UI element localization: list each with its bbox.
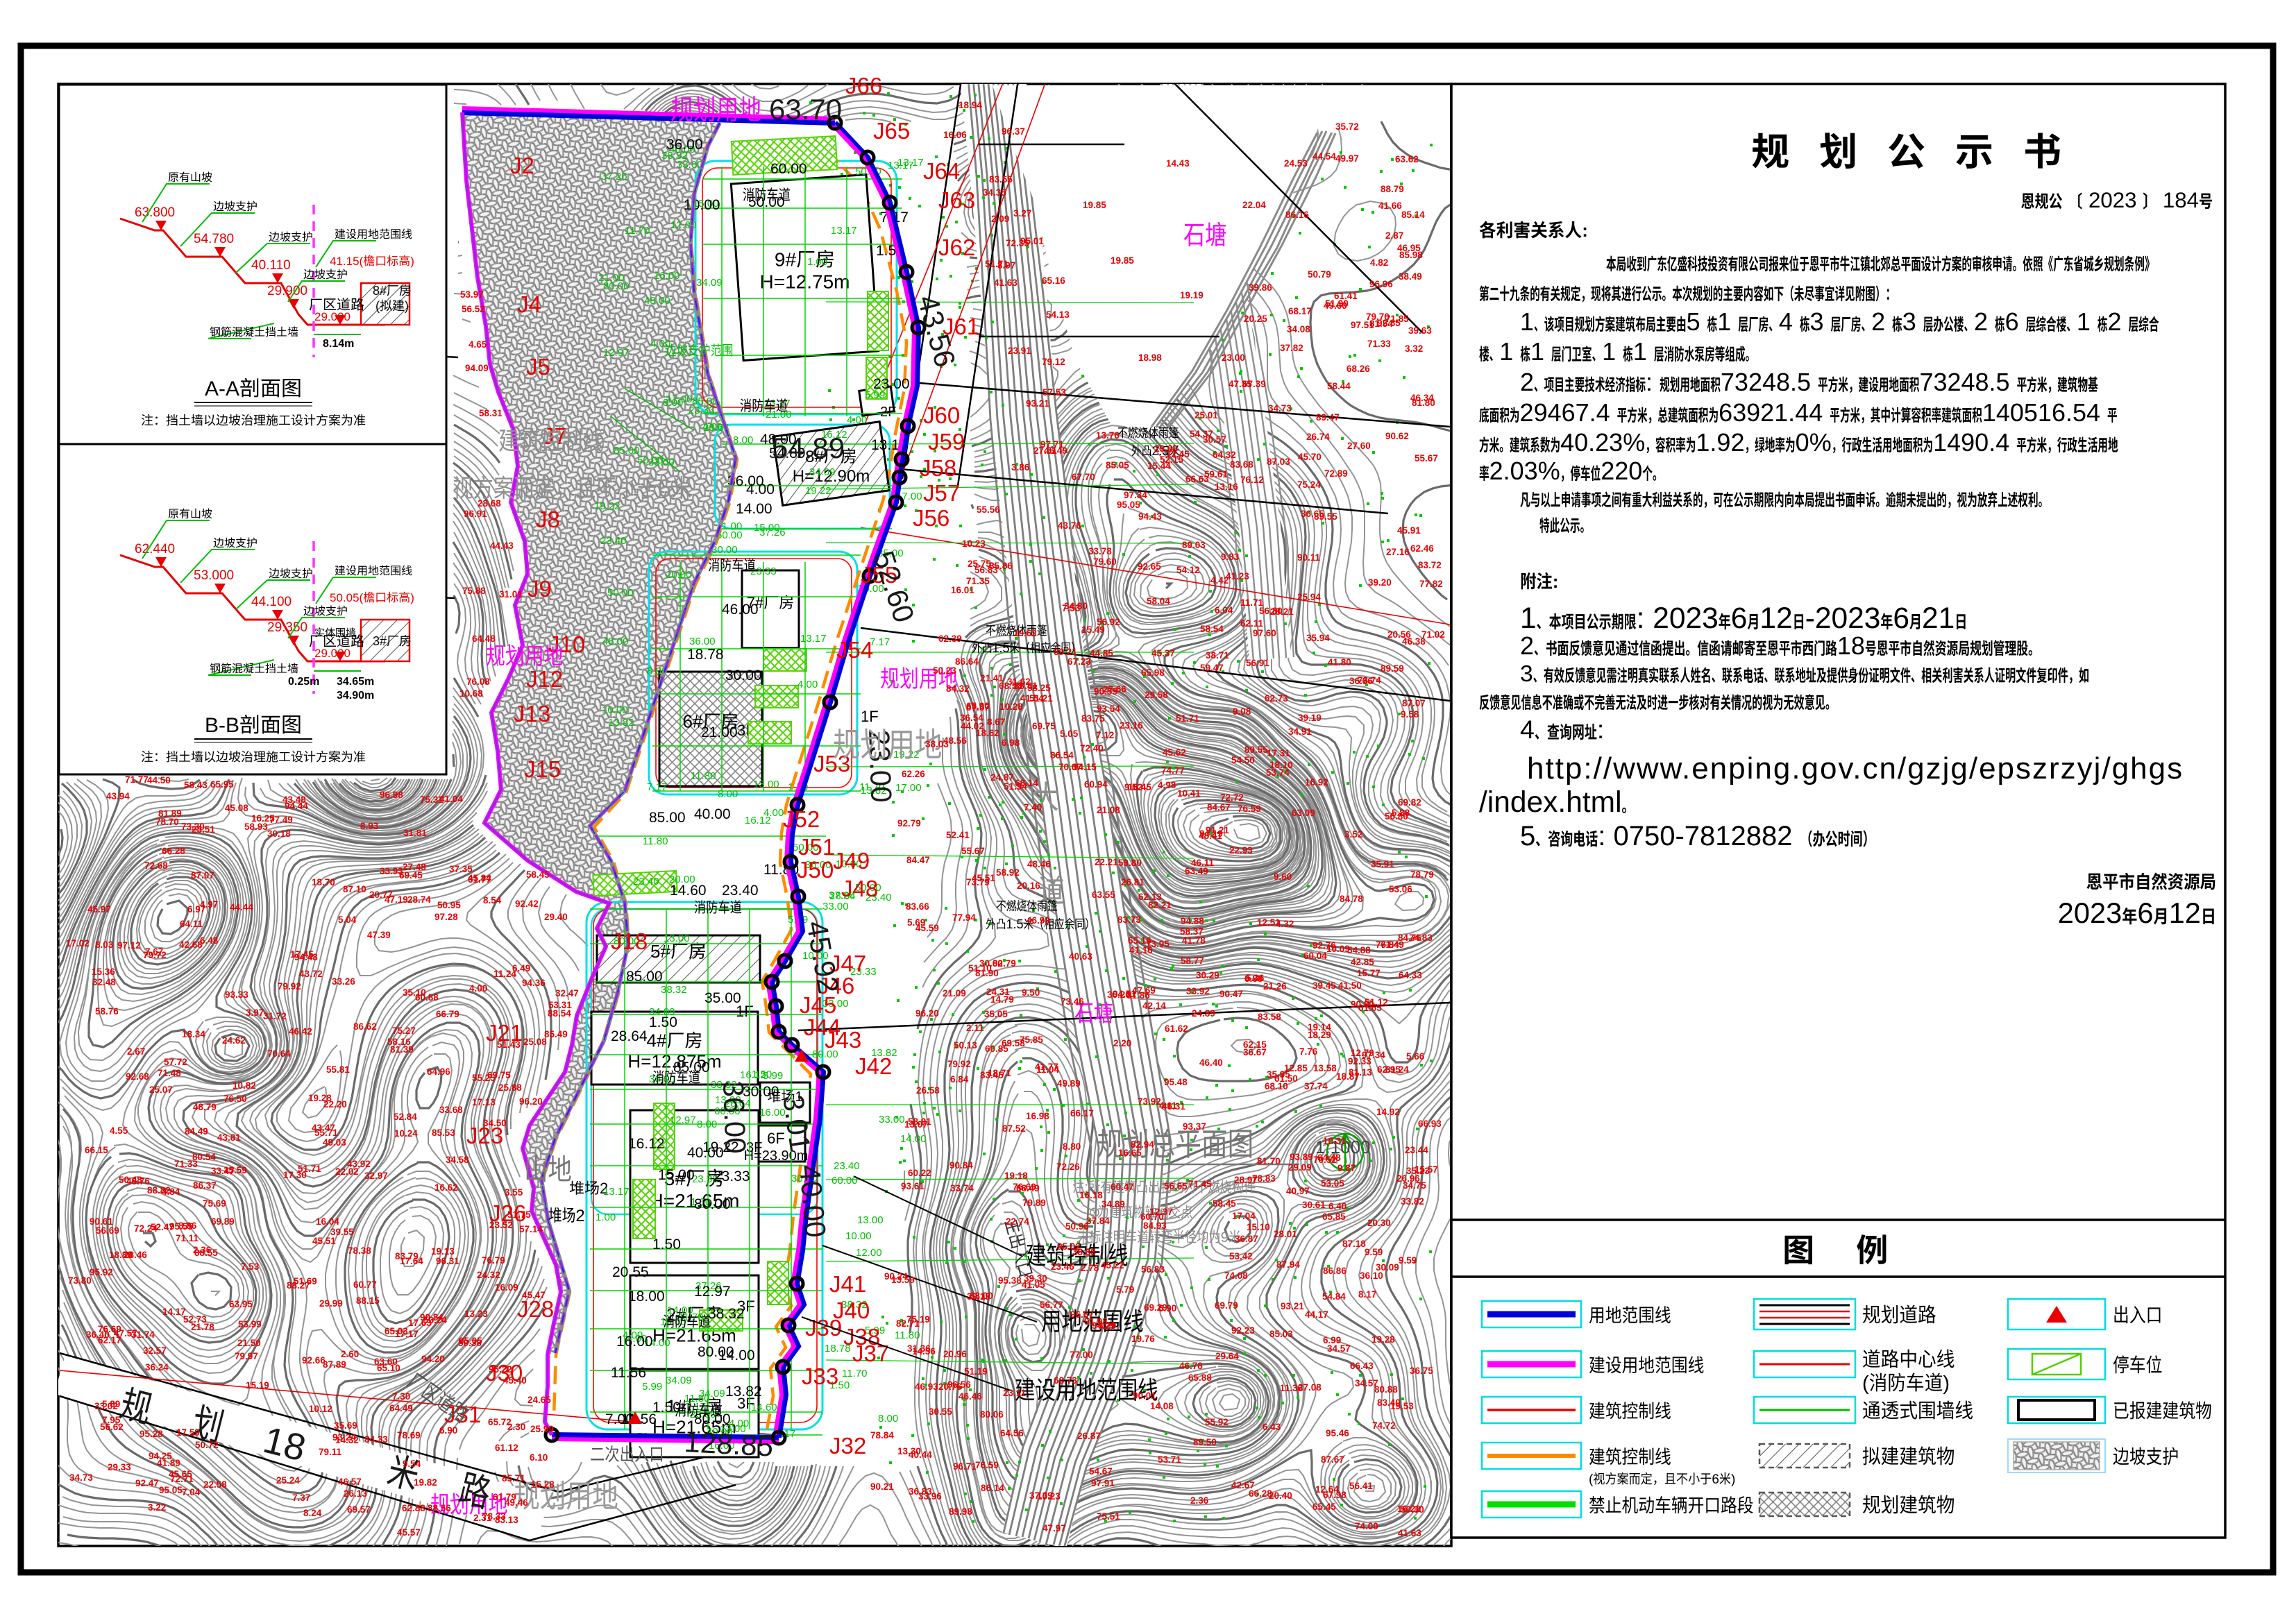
svg-text:2023: 2023 (2082, 188, 2143, 212)
svg-text:97.34: 97.34 (1124, 490, 1147, 500)
svg-text:72.24: 72.24 (134, 1223, 158, 1234)
svg-text:50.79: 50.79 (1308, 269, 1331, 280)
svg-text:76.84: 76.84 (1376, 940, 1399, 950)
svg-text:29.900: 29.900 (267, 284, 307, 298)
svg-text::: : (1646, 368, 1660, 396)
svg-text:10.82: 10.82 (233, 1080, 256, 1091)
svg-text:4.00: 4.00 (797, 679, 818, 690)
svg-text:76.79: 76.79 (482, 1255, 505, 1266)
svg-text:69.57: 69.57 (347, 1504, 371, 1515)
svg-text:58.31: 58.31 (479, 408, 503, 418)
svg-text:2: 2 (1520, 631, 1534, 660)
svg-text:20.30: 20.30 (1367, 1218, 1391, 1228)
svg-text:33.00: 33.00 (677, 159, 703, 171)
svg-text:48.00: 48.00 (644, 295, 670, 307)
svg-text:J18: J18 (611, 928, 648, 954)
svg-text:54.12: 54.12 (1176, 565, 1200, 575)
svg-text:53.71: 53.71 (1158, 1454, 1181, 1465)
svg-text:65.45: 65.45 (1312, 1502, 1336, 1512)
svg-text:77.00: 77.00 (1070, 1350, 1093, 1360)
svg-text:29.33: 29.33 (108, 1462, 131, 1472)
svg-text:4.55: 4.55 (110, 1125, 128, 1136)
svg-text:4.00: 4.00 (763, 807, 784, 819)
svg-text:1: 1 (1499, 337, 1520, 366)
svg-text:23.52: 23.52 (489, 1220, 513, 1230)
svg-text:64.48: 64.48 (472, 634, 496, 644)
svg-text:94.20: 94.20 (421, 1354, 445, 1364)
svg-text:13.17: 13.17 (831, 225, 857, 237)
svg-text:J32: J32 (829, 1433, 866, 1459)
svg-text:46.38: 46.38 (1402, 636, 1426, 647)
svg-text:(: ( (375, 299, 380, 313)
svg-text:62.46: 62.46 (1410, 543, 1434, 554)
svg-text:67.23: 67.23 (1067, 656, 1091, 667)
svg-text:85.05: 85.05 (1106, 460, 1129, 470)
svg-text:38.32: 38.32 (661, 984, 687, 996)
svg-text:45.08: 45.08 (225, 803, 248, 813)
svg-text:2: 2 (1974, 307, 1995, 336)
svg-text:67.98: 67.98 (1323, 1490, 1347, 1500)
svg-text:8.14m: 8.14m (323, 338, 354, 350)
svg-text:27.16: 27.16 (1386, 547, 1410, 557)
svg-text:55.67: 55.67 (961, 846, 985, 856)
svg-text:12: 12 (2169, 897, 2201, 929)
svg-text:11.24: 11.24 (493, 969, 517, 979)
svg-text:60.22: 60.22 (908, 1168, 931, 1178)
svg-text:22.02: 22.02 (335, 1166, 359, 1177)
svg-text:7.30: 7.30 (392, 1391, 410, 1402)
svg-text:46.46: 46.46 (959, 1391, 982, 1402)
svg-text:48.00: 48.00 (602, 636, 629, 647)
svg-text:3: 3 (1520, 661, 1533, 687)
svg-text:69.89: 69.89 (211, 1216, 235, 1227)
svg-text:J42: J42 (855, 1053, 892, 1079)
svg-text:74.72: 74.72 (1372, 1420, 1396, 1431)
svg-text:25.99: 25.99 (530, 1424, 554, 1434)
svg-text:60.85: 60.85 (985, 1044, 1008, 1054)
svg-text:63921.44: 63921.44 (1719, 398, 1830, 427)
svg-text:71.45: 71.45 (1188, 1179, 1212, 1189)
svg-text:9.54: 9.54 (403, 1459, 421, 1469)
svg-text:9.87: 9.87 (1337, 1163, 1356, 1173)
svg-text:66.15: 66.15 (85, 1145, 108, 1155)
svg-text:37.82: 37.82 (1280, 343, 1303, 353)
svg-text:90.47: 90.47 (1219, 989, 1243, 999)
svg-text:3: 3 (1902, 307, 1923, 336)
svg-text:88.56: 88.56 (428, 1503, 451, 1513)
svg-text:1F: 1F (861, 708, 879, 725)
svg-text:25.07: 25.07 (149, 1085, 173, 1095)
svg-text:35.05: 35.05 (984, 1009, 1008, 1019)
svg-text:18.88: 18.88 (109, 1250, 133, 1260)
svg-text:92.65: 92.65 (1138, 561, 1161, 572)
svg-text:6.84: 6.84 (950, 1074, 969, 1085)
svg-text:55.92: 55.92 (1205, 1417, 1229, 1427)
svg-text:14.60: 14.60 (751, 1402, 777, 1413)
svg-text:3#: 3# (373, 634, 387, 648)
svg-text:6: 6 (2137, 897, 2153, 929)
svg-text:19.22: 19.22 (805, 485, 832, 497)
svg-text:23.33: 23.33 (714, 1169, 750, 1184)
svg-text:95.46: 95.46 (1326, 1428, 1349, 1438)
svg-text:79.12: 79.12 (1042, 357, 1065, 367)
svg-text:51.43: 51.43 (497, 1039, 521, 1050)
svg-text:16.01: 16.01 (951, 585, 974, 595)
svg-text:62.73: 62.73 (1265, 693, 1288, 704)
svg-text:12.97: 12.97 (670, 1114, 696, 1126)
svg-text:46.93: 46.93 (915, 1382, 938, 1392)
svg-text:92.42: 92.42 (515, 899, 539, 909)
svg-text:(: ( (1862, 1373, 1869, 1395)
svg-text:33.00: 33.00 (879, 1114, 905, 1125)
svg-text:50.30: 50.30 (1401, 1504, 1424, 1515)
svg-text:84.67: 84.67 (1207, 802, 1231, 813)
svg-text:86.86: 86.86 (1323, 1266, 1347, 1276)
svg-text:1: 1 (1520, 602, 1537, 635)
svg-text:14.00: 14.00 (900, 1133, 927, 1145)
svg-text:92.79: 92.79 (897, 818, 921, 829)
svg-text:93.37: 93.37 (1183, 1121, 1206, 1132)
svg-text:6: 6 (1712, 1472, 1719, 1487)
svg-text:12.97: 12.97 (694, 1284, 731, 1300)
svg-text:23.44: 23.44 (1405, 1145, 1428, 1155)
svg-text:8.00: 8.00 (878, 1413, 898, 1425)
svg-text:61.65: 61.65 (1358, 1003, 1382, 1013)
svg-text:2.78: 2.78 (1081, 1263, 1099, 1273)
svg-text:41.63: 41.63 (1398, 1528, 1421, 1538)
svg-text:29467.4: 29467.4 (1520, 398, 1617, 427)
svg-text:16.92: 16.92 (1305, 777, 1328, 788)
svg-text:10.12: 10.12 (309, 1404, 332, 1414)
svg-text:29.58: 29.58 (1145, 690, 1168, 700)
svg-text:62.11: 62.11 (1240, 618, 1264, 629)
svg-text:79.72: 79.72 (143, 950, 167, 960)
svg-text:32.48: 32.48 (92, 977, 116, 987)
svg-text:80.00: 80.00 (694, 1196, 731, 1212)
svg-text:94.25: 94.25 (149, 1451, 172, 1461)
svg-text:96.98: 96.98 (380, 790, 403, 800)
svg-text:50.72: 50.72 (195, 1440, 219, 1450)
svg-text:63.70: 63.70 (769, 93, 842, 126)
svg-text:12.00: 12.00 (856, 1247, 882, 1259)
svg-text:65.95: 65.95 (210, 779, 234, 790)
svg-text:35.94: 35.94 (1306, 633, 1330, 643)
svg-text:66.93: 66.93 (1418, 1119, 1442, 1129)
svg-text:25.94: 25.94 (1297, 592, 1321, 602)
svg-text:47.35: 47.35 (1229, 379, 1252, 389)
svg-text:1.50: 1.50 (652, 1400, 681, 1416)
svg-text:73248.5: 73248.5 (1919, 368, 2016, 396)
svg-text:97.51: 97.51 (1351, 320, 1374, 330)
svg-text:90.55: 90.55 (1094, 686, 1117, 697)
svg-text:94.48: 94.48 (294, 952, 318, 962)
svg-text:28.97: 28.97 (1234, 1175, 1258, 1185)
svg-text:39.45: 39.45 (1312, 980, 1336, 991)
svg-text:50.00: 50.00 (607, 587, 634, 599)
svg-text:33.00: 33.00 (822, 901, 849, 912)
svg-text:18.98: 18.98 (1138, 352, 1162, 363)
svg-text:96.91: 96.91 (464, 509, 487, 519)
svg-text:90.62: 90.62 (1385, 431, 1409, 441)
svg-text:63.55: 63.55 (1092, 890, 1115, 900)
svg-text:46.11: 46.11 (1191, 858, 1215, 868)
svg-text:45.97: 45.97 (87, 904, 111, 915)
svg-text:34.73: 34.73 (1268, 403, 1292, 414)
svg-text:94.43: 94.43 (1138, 511, 1162, 522)
svg-text:33.78: 33.78 (1088, 546, 1112, 556)
svg-text:J2: J2 (510, 153, 534, 178)
svg-text:4.00: 4.00 (746, 482, 775, 498)
svg-text:82.21: 82.21 (1148, 900, 1172, 910)
svg-text:J51: J51 (798, 834, 835, 860)
svg-text:17.13: 17.13 (472, 1097, 496, 1107)
svg-text:83.66: 83.66 (906, 901, 929, 912)
svg-text:31.74: 31.74 (131, 1329, 155, 1340)
svg-text:32.57: 32.57 (143, 1345, 167, 1356)
svg-text:6: 6 (2005, 307, 2026, 336)
svg-text:62.15: 62.15 (1243, 1039, 1267, 1050)
svg-text:30.29: 30.29 (1196, 970, 1219, 980)
svg-text:18.78: 18.78 (687, 647, 724, 663)
svg-text:62.26: 62.26 (902, 769, 925, 779)
svg-text:49.46: 49.46 (505, 1497, 528, 1508)
svg-text:49.03: 49.03 (323, 1137, 346, 1148)
svg-text:30.18: 30.18 (267, 829, 291, 839)
svg-text:54.84: 54.84 (1322, 1291, 1346, 1302)
svg-text:40.63: 40.63 (1069, 951, 1092, 962)
svg-text:89.59: 89.59 (1381, 663, 1404, 674)
svg-text:64.33: 64.33 (1399, 970, 1422, 980)
svg-text:58.45: 58.45 (1213, 1198, 1236, 1209)
svg-text:4.82: 4.82 (1370, 257, 1388, 268)
svg-text:15.00: 15.00 (658, 1167, 695, 1183)
svg-text:97.91: 97.91 (1091, 1478, 1115, 1488)
svg-text:4.98: 4.98 (1158, 780, 1176, 790)
svg-text:69.79: 69.79 (1215, 1300, 1238, 1311)
svg-text:11.36: 11.36 (1280, 1383, 1303, 1393)
svg-text:96.56: 96.56 (947, 1379, 971, 1390)
svg-text:2: 2 (2108, 307, 2129, 336)
svg-text:17.02: 17.02 (66, 938, 90, 949)
svg-text:13.58: 13.58 (1313, 1063, 1337, 1073)
svg-text:45.22: 45.22 (1101, 1260, 1124, 1271)
svg-text:J13: J13 (514, 701, 550, 726)
svg-text:16.62: 16.62 (434, 1182, 458, 1193)
svg-text:6: 6 (1731, 602, 1748, 635)
svg-text:85.00: 85.00 (614, 445, 640, 457)
svg-text:85.03: 85.03 (1269, 1329, 1293, 1339)
svg-text:13.30: 13.30 (897, 1446, 921, 1456)
svg-text:220: 220 (1601, 457, 1642, 485)
svg-text:8.03: 8.03 (95, 940, 114, 950)
svg-text:2: 2 (575, 1207, 584, 1225)
svg-text:95.55: 95.55 (169, 1221, 193, 1232)
svg-text:79.97: 79.97 (235, 1351, 258, 1361)
svg-text:5.99: 5.99 (642, 1381, 662, 1393)
svg-text:34.09: 34.09 (666, 1375, 692, 1386)
svg-text:1.50: 1.50 (649, 1014, 677, 1030)
svg-text:50.05(: 50.05( (330, 591, 364, 604)
svg-text::: : (1582, 220, 1588, 241)
svg-text:J62: J62 (938, 235, 975, 260)
svg-text:8.00: 8.00 (697, 1119, 717, 1130)
svg-text:34.80: 34.80 (1064, 601, 1088, 611)
svg-text:4.00: 4.00 (847, 414, 867, 426)
svg-text:50.00: 50.00 (748, 194, 785, 210)
svg-text:8.67: 8.67 (987, 717, 1005, 727)
svg-text:50.13: 50.13 (954, 1040, 977, 1051)
svg-text:47.39: 47.39 (367, 930, 391, 940)
svg-text:9.52: 9.52 (1124, 782, 1142, 792)
svg-text:J5: J5 (526, 354, 550, 380)
svg-text:33.96: 33.96 (918, 1491, 942, 1502)
svg-text:12.97: 12.97 (603, 347, 630, 359)
svg-text:6: 6 (657, 474, 671, 502)
svg-text:13.59: 13.59 (891, 1275, 915, 1285)
svg-text:1: 1 (2077, 307, 2097, 336)
svg-text:39.30: 39.30 (1024, 1273, 1047, 1284)
svg-text:J58: J58 (920, 455, 956, 481)
svg-text:46.78: 46.78 (1179, 1361, 1203, 1371)
svg-text:16.04: 16.04 (316, 1216, 339, 1227)
svg-text:40.110: 40.110 (251, 258, 291, 273)
svg-text:40.23%: 40.23% (1560, 428, 1645, 457)
svg-text:64.32: 64.32 (1213, 450, 1236, 460)
svg-text:33.47: 33.47 (211, 1166, 235, 1176)
svg-text:53.05: 53.05 (1321, 1178, 1344, 1189)
svg-text:55.56: 55.56 (977, 504, 1000, 515)
svg-text:4.84: 4.84 (162, 1187, 180, 1197)
svg-text:44.85: 44.85 (1090, 648, 1113, 658)
svg-text:75.51: 75.51 (1097, 1511, 1120, 1522)
svg-text:29.40: 29.40 (544, 912, 568, 922)
svg-text:15.00: 15.00 (754, 522, 780, 534)
svg-text:84.78: 84.78 (1340, 894, 1363, 904)
svg-text:J64: J64 (923, 158, 960, 184)
svg-text:8.97: 8.97 (997, 260, 1015, 271)
svg-text:43.72: 43.72 (299, 969, 323, 979)
svg-text:7.76: 7.76 (1299, 1046, 1318, 1057)
svg-text:71.77: 71.77 (125, 774, 149, 785)
svg-text:9.58: 9.58 (1401, 709, 1419, 720)
svg-text:46.31: 46.31 (1162, 1101, 1185, 1112)
svg-text:24.32: 24.32 (477, 1270, 500, 1280)
svg-text:65.72: 65.72 (488, 1417, 512, 1427)
svg-text:89.21: 89.21 (1054, 647, 1077, 657)
svg-text:53.99: 53.99 (238, 1319, 262, 1329)
svg-text:92.47: 92.47 (135, 1478, 159, 1488)
svg-text:83.72: 83.72 (1418, 560, 1442, 570)
svg-text:64.11: 64.11 (180, 919, 203, 929)
svg-text:75.24: 75.24 (1297, 479, 1321, 490)
svg-text:81.70: 81.70 (1257, 1156, 1281, 1166)
svg-text:47.97: 47.97 (1043, 1523, 1066, 1533)
svg-text:90.11: 90.11 (1297, 552, 1321, 563)
svg-text:1490.4: 1490.4 (1933, 428, 2016, 457)
svg-text:45.70: 45.70 (1298, 452, 1322, 462)
svg-text:26.74: 26.74 (1306, 432, 1330, 442)
svg-text:93.21: 93.21 (1281, 1301, 1304, 1311)
svg-text:19.22: 19.22 (594, 500, 621, 512)
svg-text:17.30: 17.30 (283, 1170, 307, 1180)
svg-text:79.92: 79.92 (947, 1059, 971, 1069)
svg-text:8.24: 8.24 (303, 1508, 322, 1518)
svg-text:84.32: 84.32 (946, 683, 970, 694)
svg-text:6.48: 6.48 (200, 935, 219, 946)
svg-text:41.04: 41.04 (439, 794, 463, 804)
svg-text:53.42: 53.42 (1229, 1251, 1253, 1261)
svg-text:60.73: 60.73 (1054, 1375, 1077, 1386)
svg-text:55.81: 55.81 (326, 1064, 350, 1075)
svg-text:2.20: 2.20 (1113, 1038, 1131, 1048)
svg-text:22.21: 22.21 (1095, 857, 1118, 867)
svg-text:2.36: 2.36 (193, 1245, 212, 1255)
svg-text:9.50: 9.50 (1022, 987, 1040, 998)
svg-text:J12: J12 (526, 666, 563, 692)
svg-text:4.65: 4.65 (469, 339, 487, 350)
svg-text:18.00: 18.00 (628, 1289, 665, 1305)
svg-text:33.68: 33.68 (439, 1105, 463, 1115)
svg-text:5: 5 (1687, 307, 1707, 336)
svg-text:6.99: 6.99 (1323, 1335, 1341, 1345)
svg-text:35.00: 35.00 (704, 990, 741, 1006)
svg-text:3.97: 3.97 (246, 1008, 264, 1018)
svg-text:13.17: 13.17 (888, 160, 914, 171)
svg-text:5.99: 5.99 (763, 1070, 783, 1082)
svg-text:14.08: 14.08 (1150, 1401, 1174, 1411)
svg-text:71.11: 71.11 (176, 1233, 199, 1243)
svg-text:23.33: 23.33 (750, 566, 777, 577)
svg-text:1.50: 1.50 (652, 1237, 681, 1252)
svg-text:J53: J53 (813, 751, 850, 776)
svg-text:46.99: 46.99 (1027, 915, 1050, 926)
svg-text:J52: J52 (783, 806, 820, 832)
svg-text:72.68: 72.68 (144, 860, 168, 871)
svg-text:23.40: 23.40 (722, 883, 759, 899)
svg-text:63.800: 63.800 (135, 205, 175, 220)
svg-text:4.00: 4.00 (469, 983, 487, 994)
svg-text:6.43: 6.43 (1263, 1422, 1281, 1432)
svg-text:93.89: 93.89 (1290, 1152, 1313, 1162)
svg-text:10.23: 10.23 (962, 538, 986, 549)
svg-text:74.08: 74.08 (1224, 1271, 1248, 1281)
svg-text:84.49: 84.49 (185, 1126, 208, 1137)
svg-text:45.51: 45.51 (312, 1236, 336, 1246)
svg-text:16.12: 16.12 (628, 1136, 665, 1152)
svg-text:14.17: 14.17 (162, 1307, 186, 1317)
svg-text:78.70: 78.70 (155, 817, 179, 827)
svg-text:97.71: 97.71 (1040, 439, 1064, 450)
svg-text:19.82: 19.82 (414, 1477, 437, 1488)
svg-text::: : (1553, 571, 1559, 592)
svg-text:45.40: 45.40 (503, 1375, 527, 1386)
svg-text:9: 9 (1221, 1230, 1229, 1246)
svg-text:24.65: 24.65 (527, 1395, 551, 1405)
svg-text:72.72: 72.72 (1220, 792, 1244, 803)
svg-text:11.56: 11.56 (611, 1365, 646, 1381)
svg-text:6.04: 6.04 (1215, 605, 1233, 615)
svg-text:6.10: 6.10 (530, 1452, 548, 1463)
svg-text:25.88: 25.88 (498, 1082, 522, 1093)
svg-text:4.97: 4.97 (200, 899, 218, 910)
svg-text:17.59: 17.59 (176, 1427, 200, 1438)
svg-text:88.15: 88.15 (356, 1295, 380, 1306)
svg-text:55.25: 55.25 (472, 1073, 496, 1083)
svg-text:18.70: 18.70 (312, 877, 335, 887)
svg-text:17.31: 17.31 (1267, 748, 1290, 758)
svg-text:23.40: 23.40 (600, 535, 627, 547)
svg-text:95.05: 95.05 (159, 1485, 183, 1495)
